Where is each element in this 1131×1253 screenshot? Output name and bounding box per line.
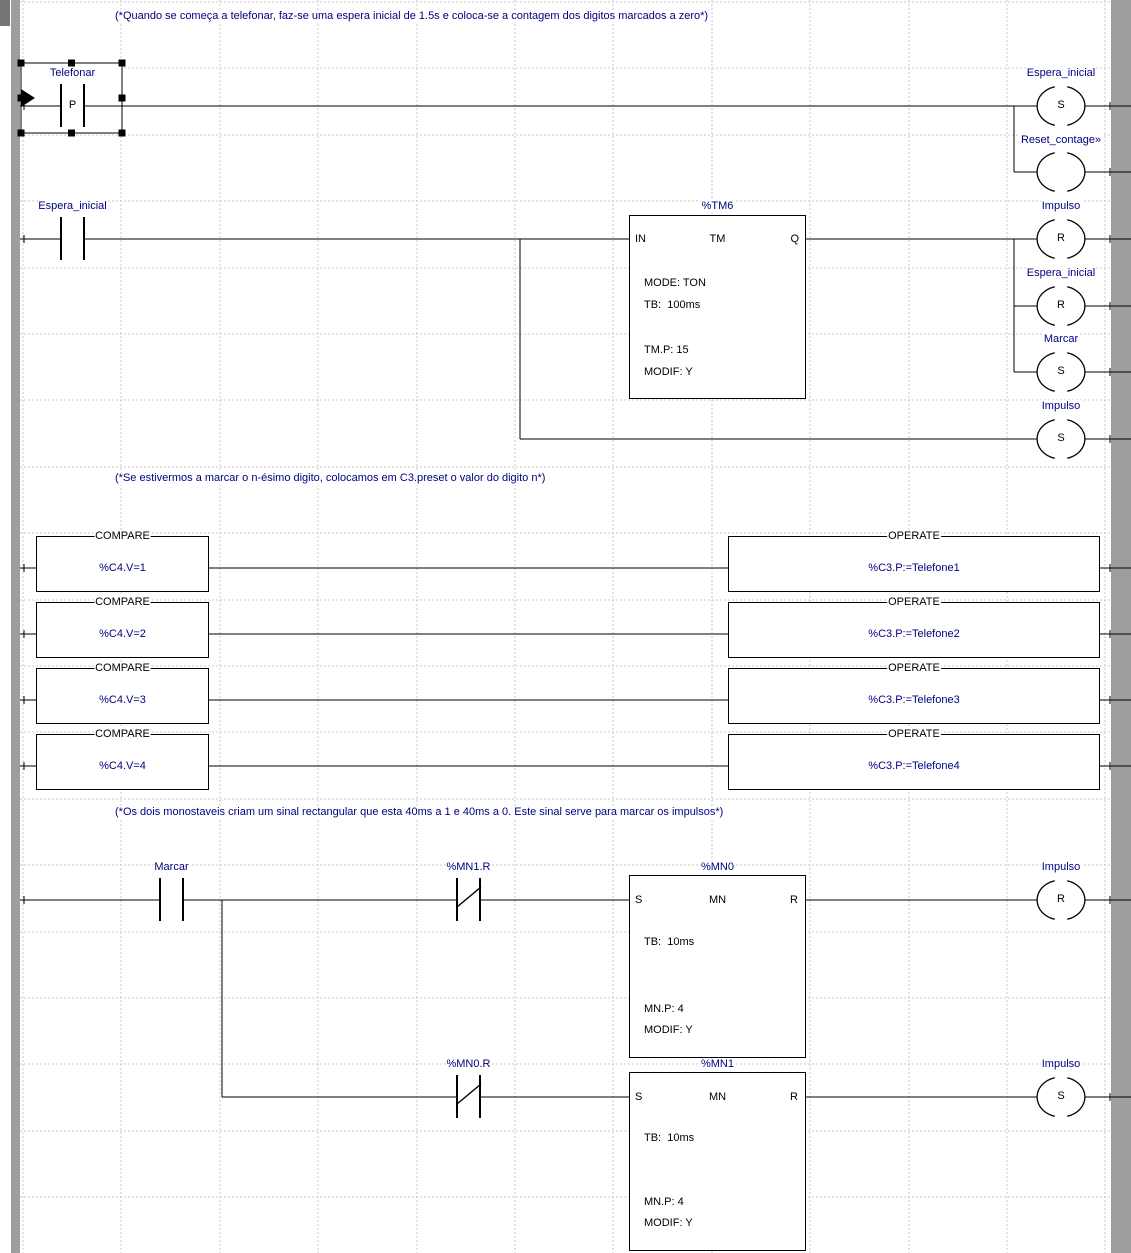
contact-marcar-label: Marcar: [153, 861, 189, 874]
compare-block-4[interactable]: COMPARE %C4.V=4: [36, 734, 209, 790]
coil-espera-r-label: Espera_inicial: [1026, 267, 1096, 280]
mono0-pin-r: R: [790, 894, 798, 907]
window-corner: [0, 0, 10, 26]
mono0-modif-line: MODIF: Y: [644, 1024, 693, 1037]
contact-mn0r-label: %MN0.R: [445, 1058, 491, 1071]
operate-block-1-assignment: %C3.P:=Telefone1: [868, 562, 959, 575]
operate-block-4-title: OPERATE: [887, 728, 941, 741]
coil-marcar-s-operator: S: [1057, 365, 1064, 378]
mono1-timebase-line: TB: 10ms: [644, 1132, 694, 1145]
mono1-pin-s: S: [635, 1091, 642, 1104]
contact-telefonar-label: Telefonar: [49, 67, 96, 80]
compare-block-3-expression: %C4.V=3: [99, 694, 146, 707]
coil-impulso-r2-operator: R: [1057, 893, 1065, 906]
timer-timebase-line: TB: 100ms: [644, 299, 700, 312]
compare-block-3[interactable]: COMPARE %C4.V=3: [36, 668, 209, 724]
coil-impulso-r2-label: Impulso: [1041, 861, 1082, 874]
compare-block-2-expression: %C4.V=2: [99, 628, 146, 641]
mono0-pin-s: S: [635, 894, 642, 907]
selection-handle[interactable]: [68, 130, 75, 137]
timer-mode-line: MODE: TON: [644, 277, 706, 290]
selection-handle[interactable]: [119, 60, 126, 67]
coil-marcar-s-label: Marcar: [1043, 333, 1079, 346]
coil-espera-set-label: Espera_inicial: [1026, 67, 1096, 80]
operate-block-1[interactable]: OPERATE %C3.P:=Telefone1: [728, 536, 1100, 592]
coil-espera-set-operator: S: [1057, 99, 1064, 112]
contact-mn1r-label: %MN1.R: [445, 861, 491, 874]
monostable-block-mn1[interactable]: S MN R TB: 10ms MN.P: 4 MODIF: Y: [629, 1072, 806, 1251]
operate-block-2[interactable]: OPERATE %C3.P:=Telefone2: [728, 602, 1100, 658]
operate-block-4-assignment: %C3.P:=Telefone4: [868, 760, 959, 773]
left-power-rail: [11, 0, 20, 1253]
compare-block-2[interactable]: COMPARE %C4.V=2: [36, 602, 209, 658]
timer-pin-q: Q: [790, 233, 799, 246]
selection-handle[interactable]: [119, 130, 126, 137]
network2-comment[interactable]: (*Se estivermos a marcar o n-ésimo digit…: [115, 472, 545, 485]
operate-block-4[interactable]: OPERATE %C3.P:=Telefone4: [728, 734, 1100, 790]
timer-pin-in: IN: [635, 233, 646, 246]
mono0-timebase-line: TB: 10ms: [644, 936, 694, 949]
operate-block-3-assignment: %C3.P:=Telefone3: [868, 694, 959, 707]
coil-reset-contagem-label: Reset_contage»: [1020, 134, 1102, 147]
mono0-pin-mn: MN: [709, 894, 726, 907]
coil-impulso-r-operator: R: [1057, 232, 1065, 245]
compare-block-2-title: COMPARE: [94, 596, 151, 609]
negated-slash: [457, 887, 481, 907]
coil-reset-contagem[interactable]: [1037, 153, 1085, 192]
coil-espera-r-operator: R: [1057, 299, 1065, 312]
mono1-pin-r: R: [790, 1091, 798, 1104]
contact-mn0-r-negated[interactable]: [457, 1075, 481, 1118]
selection-handle[interactable]: [119, 95, 126, 102]
selection-handle[interactable]: [18, 130, 25, 137]
contact-marcar[interactable]: [160, 878, 183, 921]
compare-block-4-expression: %C4.V=4: [99, 760, 146, 773]
timer-modif-line: MODIF: Y: [644, 366, 693, 379]
mono1-pin-mn: MN: [709, 1091, 726, 1104]
operate-block-3-title: OPERATE: [887, 662, 941, 675]
right-power-rail: [1111, 0, 1131, 1253]
mono0-preset-line: MN.P: 4: [644, 1003, 684, 1016]
timer-pin-tm: TM: [710, 233, 726, 246]
ladder-editor-canvas[interactable]: (*Quando se começa a telefonar, faz-se u…: [0, 0, 1131, 1253]
mono1-preset-line: MN.P: 4: [644, 1196, 684, 1209]
contact-espera-label: Espera_inicial: [37, 200, 107, 213]
contact-telefonar-edge-modifier: P: [69, 99, 76, 112]
mono1-block-name: %MN1: [700, 1058, 735, 1071]
selection-handle[interactable]: [68, 60, 75, 67]
mono1-modif-line: MODIF: Y: [644, 1217, 693, 1230]
contact-espera-inicial[interactable]: [61, 217, 84, 260]
operate-block-1-title: OPERATE: [887, 530, 941, 543]
selection-handle[interactable]: [18, 60, 25, 67]
network1-comment[interactable]: (*Quando se começa a telefonar, faz-se u…: [115, 10, 708, 23]
compare-block-4-title: COMPARE: [94, 728, 151, 741]
operate-block-2-assignment: %C3.P:=Telefone2: [868, 628, 959, 641]
network3-comment[interactable]: (*Os dois monostaveis criam um sinal rec…: [115, 806, 723, 819]
contact-mn1-r-negated[interactable]: [457, 878, 481, 921]
compare-block-1-title: COMPARE: [94, 530, 151, 543]
timer-block-name: %TM6: [701, 200, 735, 213]
coil-impulso-s-label: Impulso: [1041, 400, 1082, 413]
coil-impulso-s2-label: Impulso: [1041, 1058, 1082, 1071]
monostable-block-mn0[interactable]: S MN R TB: 10ms MN.P: 4 MODIF: Y: [629, 875, 806, 1058]
negated-slash: [457, 1084, 481, 1104]
compare-block-1[interactable]: COMPARE %C4.V=1: [36, 536, 209, 592]
coil-impulso-s2-operator: S: [1057, 1090, 1064, 1103]
coil-impulso-r-label: Impulso: [1041, 200, 1082, 213]
timer-preset-line: TM.P: 15: [644, 344, 689, 357]
coil-impulso-s-operator: S: [1057, 432, 1064, 445]
compare-block-1-expression: %C4.V=1: [99, 562, 146, 575]
operate-block-2-title: OPERATE: [887, 596, 941, 609]
mono0-block-name: %MN0: [700, 861, 735, 874]
compare-block-3-title: COMPARE: [94, 662, 151, 675]
operate-block-3[interactable]: OPERATE %C3.P:=Telefone3: [728, 668, 1100, 724]
timer-function-block-tm6[interactable]: IN TM Q MODE: TON TB: 100ms TM.P: 15 MOD…: [629, 215, 806, 399]
